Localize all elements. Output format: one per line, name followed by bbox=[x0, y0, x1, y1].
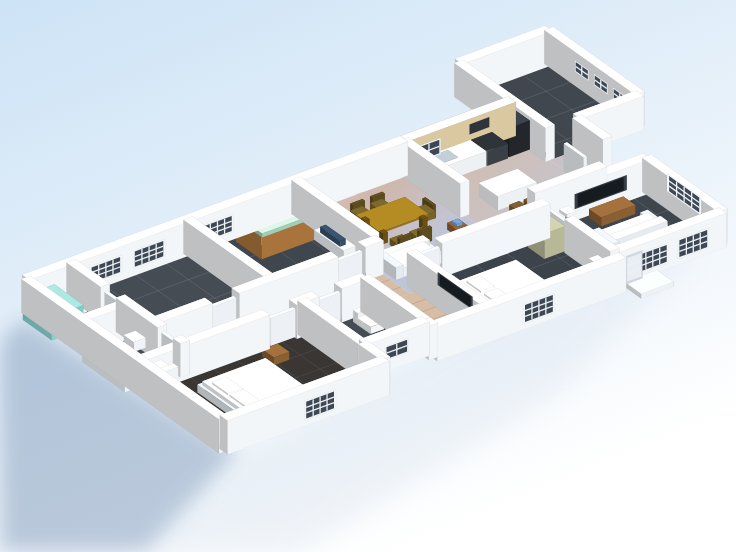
floorplan-3d-render bbox=[0, 0, 736, 552]
scene-container bbox=[0, 0, 736, 552]
front-door-panel bbox=[626, 250, 642, 284]
